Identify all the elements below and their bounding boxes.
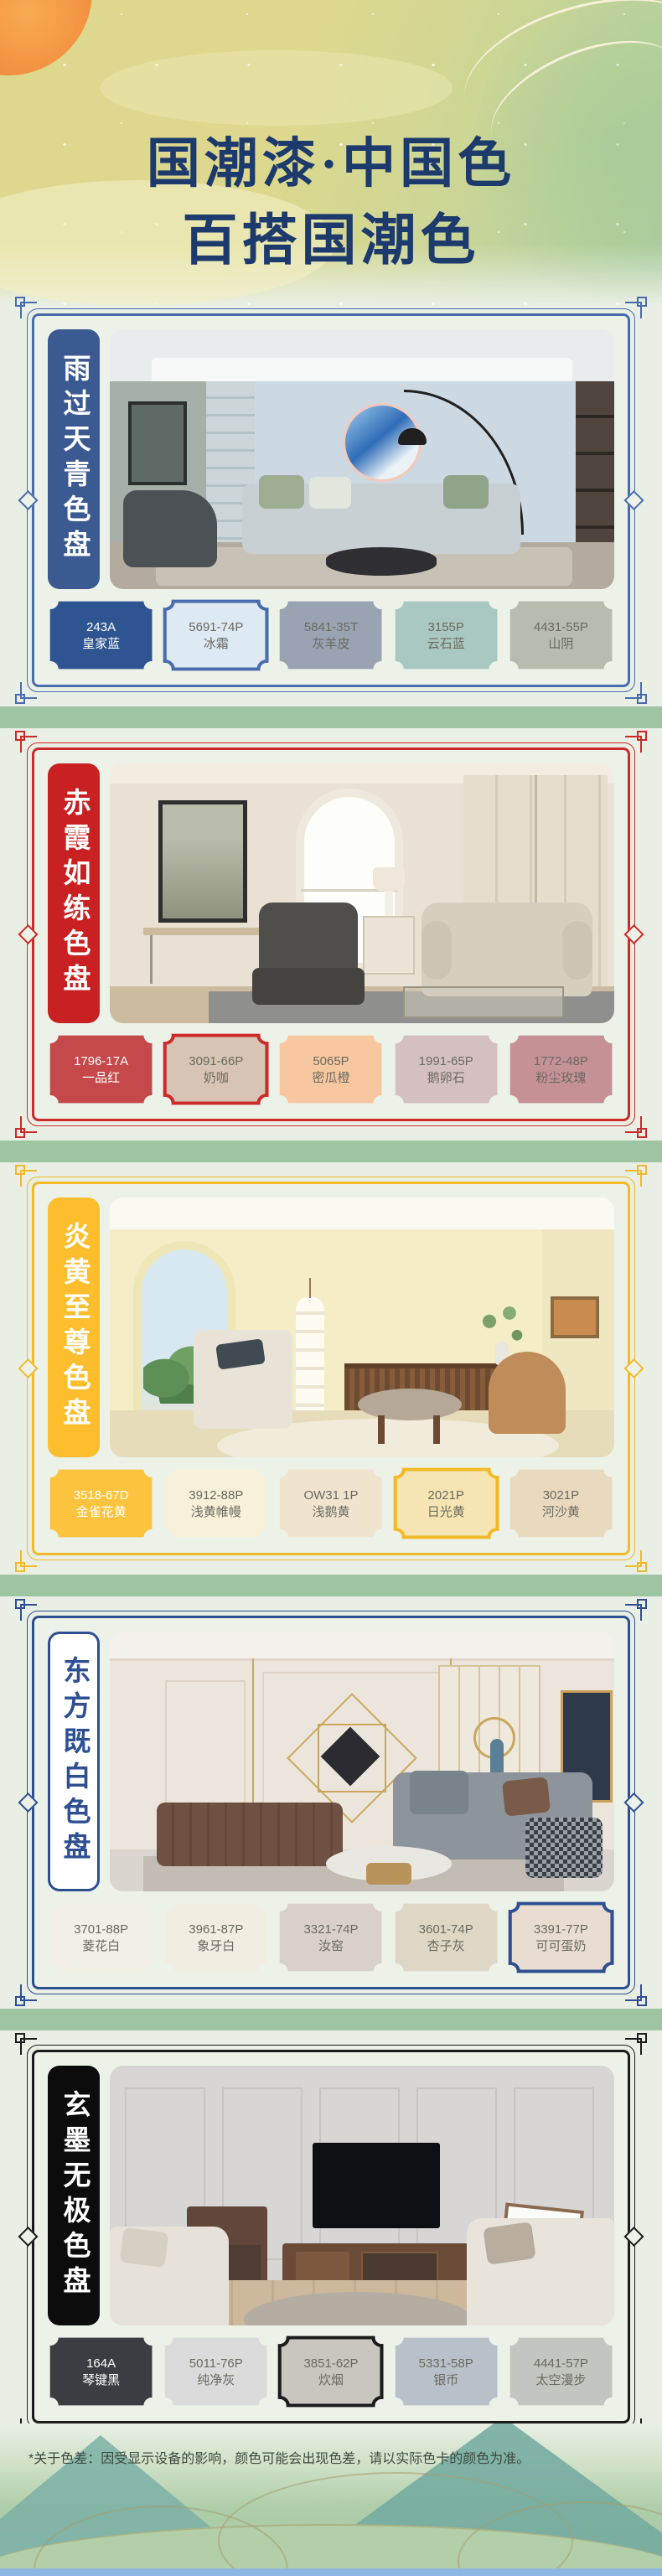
palette-title: 玄墨无极色盘 xyxy=(54,2090,94,2301)
swatch-code: 2021P xyxy=(428,1489,464,1502)
poster-footer: *关于色差：因受显示设备的影响，颜色可能会出现色差，请以实际色卡的颜色为准。 xyxy=(0,2423,662,2576)
swatch-name: 冰霜 xyxy=(204,638,229,650)
color-swatch: 5691-74P冰霜 xyxy=(163,599,269,671)
swatch-code: OW31 1P xyxy=(303,1489,358,1502)
swatch-name: 一品红 xyxy=(82,1072,120,1084)
swatch-name: 奶咖 xyxy=(204,1072,229,1084)
table-leg xyxy=(433,1415,440,1444)
swatch-name: 云石蓝 xyxy=(427,638,465,650)
swatch-name: 山阴 xyxy=(548,638,573,650)
swatch-row: 3701-88P菱花白 3961-87P象牙白 3321-74P汝窑 3601-… xyxy=(48,1901,614,1973)
swatch-code: 4441-57P xyxy=(534,2357,588,2370)
color-swatch: 3391-77P可可蛋奶 xyxy=(508,1901,614,1973)
swatch-name: 太空漫步 xyxy=(535,2374,586,2387)
bottom-blue-bar xyxy=(0,2568,662,2576)
swatch-name: 鹅卵石 xyxy=(427,1072,465,1084)
table-leg xyxy=(378,1415,385,1444)
swatch-name: 灰羊皮 xyxy=(313,638,350,650)
cushion-white xyxy=(309,477,351,509)
swatch-name: 纯净灰 xyxy=(197,2374,235,2387)
lamp-finial xyxy=(309,1278,311,1298)
frame-edge-ornament xyxy=(18,924,38,944)
section-divider xyxy=(0,1555,662,1616)
swatch-name: 汝窑 xyxy=(318,1940,344,1953)
houndstooth-pouf xyxy=(525,1818,603,1878)
swatch-code: 5065P xyxy=(313,1055,349,1068)
sofa-roll-arm xyxy=(562,921,592,980)
swatch-name: 银币 xyxy=(433,2374,458,2387)
color-disclaimer: *关于色差：因受显示设备的影响，颜色可能会出现色差，请以实际色卡的颜色为准。 xyxy=(28,2447,645,2467)
leather-bench xyxy=(157,1803,343,1866)
swatch-row: 3518-67D金雀花黄 3912-88P浅黄帷幔 OW31 1P浅鹅黄 202… xyxy=(48,1467,614,1539)
swatch-code: 3961-87P xyxy=(189,1923,243,1936)
color-swatch: 3155P云石蓝 xyxy=(393,599,499,671)
section-divider xyxy=(0,1989,662,2050)
swatch-code: 3701-88P xyxy=(74,1923,128,1936)
swatch-code: 3518-67D xyxy=(74,1489,129,1502)
palette-banner: 东方既白色盘 xyxy=(48,1632,100,1891)
coffee-table-glass xyxy=(403,986,564,1018)
swatch-code: 3391-77P xyxy=(534,1923,588,1936)
table-lamp-shade xyxy=(373,867,405,891)
left-sofa-pillow xyxy=(120,2227,169,2268)
color-swatch: 3518-67D金雀花黄 xyxy=(48,1467,154,1539)
pagoda-lamp xyxy=(296,1296,324,1424)
rattan-chair xyxy=(489,1352,566,1434)
swatch-code: 1991-65P xyxy=(419,1055,473,1068)
swatch-code: 164A xyxy=(86,2357,116,2370)
art-frame xyxy=(128,401,187,485)
palette-card-white: 东方既白色盘 xyxy=(32,1616,630,1989)
room-photo xyxy=(110,2066,614,2325)
cushion-green2 xyxy=(443,475,489,509)
table-base-gold xyxy=(366,1863,411,1885)
swatch-code: 5841-35T xyxy=(304,621,358,634)
green-band xyxy=(0,706,662,728)
green-band xyxy=(0,1575,662,1596)
palette-card-red: 赤霞如练色盘 1796-17A一品红 xyxy=(32,747,630,1121)
color-swatch: 5331-58P银币 xyxy=(393,2335,499,2408)
swatch-code: 3155P xyxy=(428,621,464,634)
palette-banner: 玄墨无极色盘 xyxy=(48,2066,100,2325)
color-swatch: OW31 1P浅鹅黄 xyxy=(277,1467,384,1539)
swatch-code: 5691-74P xyxy=(189,621,243,634)
frame-edge-ornament xyxy=(18,2227,38,2247)
ceiling-recess xyxy=(152,358,572,381)
lamp-body xyxy=(385,891,393,916)
swatch-name: 杏子灰 xyxy=(427,1940,465,1953)
swatch-name: 浅鹅黄 xyxy=(313,1506,350,1518)
color-swatch: 3961-87P象牙白 xyxy=(163,1901,269,1973)
room-photo xyxy=(110,763,614,1023)
hall-painting xyxy=(551,1296,599,1338)
swatch-name: 炊烟 xyxy=(318,2374,344,2387)
brown-pillow xyxy=(502,1777,551,1816)
color-swatch: 3851-62P炊烟 xyxy=(277,2335,384,2408)
swatch-code: 1772-48P xyxy=(534,1055,588,1068)
swatch-name: 粉尘玫瑰 xyxy=(535,1072,586,1084)
swatch-row: 164A琴键黑 5011-76P纯净灰 3851-62P炊烟 5331-58P银… xyxy=(48,2335,614,2408)
palette-card-list: 雨过天青色盘 243A皇家蓝 5691 xyxy=(0,305,662,2423)
lounge-chair xyxy=(123,490,217,567)
sofa-roll-arm xyxy=(422,921,452,980)
frame-edge-ornament xyxy=(18,1792,38,1813)
coffee-table xyxy=(326,547,437,576)
console-leg xyxy=(150,935,153,984)
room-photo xyxy=(110,1632,614,1891)
palette-card-rain-blue: 雨过天青色盘 243A皇家蓝 5691 xyxy=(32,313,630,687)
section-divider xyxy=(0,1121,662,1182)
bookshelf xyxy=(576,381,614,542)
swatch-code: 3601-74P xyxy=(419,1923,473,1936)
poster-header: 国潮漆·中国色 百搭国潮色 xyxy=(0,0,662,305)
swatch-code: 3851-62P xyxy=(303,2357,358,2370)
swatch-name: 日光黄 xyxy=(427,1506,465,1518)
frame-edge-ornament xyxy=(623,490,644,510)
coffee-table xyxy=(358,1389,462,1420)
ceiling xyxy=(110,1197,614,1229)
color-swatch: 5841-35T灰羊皮 xyxy=(277,599,384,671)
palette-card-black: 玄墨无极色盘 164A琴键黑 xyxy=(32,2050,630,2423)
sun-icon xyxy=(0,0,92,75)
poster-title-line1: 国潮漆·中国色 xyxy=(0,134,662,194)
swatch-code: 3912-88P xyxy=(189,1489,243,1502)
color-swatch: 164A琴键黑 xyxy=(48,2335,154,2408)
palette-card-yellow: 炎黄至尊色盘 3518-67 xyxy=(32,1182,630,1555)
color-swatch: 3091-66P奶咖 xyxy=(163,1033,269,1105)
color-swatch: 3601-74P杏子灰 xyxy=(393,1901,499,1973)
swatch-name: 密瓜橙 xyxy=(313,1072,350,1084)
poster-title-line2: 百搭国潮色 xyxy=(0,211,662,272)
swatch-name: 象牙白 xyxy=(197,1940,235,1953)
palette-banner: 赤霞如练色盘 xyxy=(48,763,100,1023)
swatch-row: 243A皇家蓝 5691-74P冰霜 5841-35T灰羊皮 3155P云石蓝 … xyxy=(48,599,614,671)
painting xyxy=(158,800,247,923)
swatch-name: 琴键黑 xyxy=(82,2374,120,2387)
swatch-name: 皇家蓝 xyxy=(82,638,120,650)
room-photo xyxy=(110,329,614,589)
swatch-code: 3091-66P xyxy=(189,1055,243,1068)
color-swatch: 4441-57P太空漫步 xyxy=(508,2335,614,2408)
swatch-name: 河沙黄 xyxy=(542,1506,580,1518)
swatch-code: 4431-55P xyxy=(534,621,588,634)
cushion-green xyxy=(259,475,304,509)
color-swatch: 1796-17A一品红 xyxy=(48,1033,154,1105)
color-swatch: 3321-74P汝窑 xyxy=(277,1901,384,1973)
swatch-code: 3021P xyxy=(543,1489,579,1502)
frame-edge-ornament xyxy=(623,924,644,944)
swatch-row: 1796-17A一品红 3091-66P奶咖 5065P密瓜橙 1991-65P… xyxy=(48,1033,614,1105)
swatch-code: 1796-17A xyxy=(74,1055,128,1068)
color-swatch: 4431-55P山阴 xyxy=(508,599,614,671)
green-band xyxy=(0,1141,662,1162)
room-photo xyxy=(110,1197,614,1457)
swatch-name: 可可蛋奶 xyxy=(535,1940,586,1953)
color-swatch: 243A皇家蓝 xyxy=(48,599,154,671)
frame-edge-ornament xyxy=(18,1358,38,1379)
swatch-name: 金雀花黄 xyxy=(76,1506,127,1518)
color-swatch: 5011-76P纯净灰 xyxy=(163,2335,269,2408)
swatch-name: 浅黄帷幔 xyxy=(191,1506,241,1518)
palette-title: 赤霞如练色盘 xyxy=(54,788,94,999)
green-band xyxy=(0,2009,662,2030)
swatch-code: 5011-76P xyxy=(189,2357,243,2370)
tv-screen xyxy=(313,2143,440,2228)
section-divider xyxy=(0,687,662,747)
side-table xyxy=(363,916,415,975)
color-swatch: 2021P日光黄 xyxy=(393,1467,499,1539)
palette-title: 东方既白色盘 xyxy=(54,1656,94,1867)
palette-banner: 雨过天青色盘 xyxy=(48,329,100,589)
sofa-cushion xyxy=(410,1771,468,1814)
color-swatch: 5065P密瓜橙 xyxy=(277,1033,384,1105)
ceiling xyxy=(110,1632,614,1661)
swatch-code: 3321-74P xyxy=(303,1923,358,1936)
color-swatch: 3021P河沙黄 xyxy=(508,1467,614,1539)
palette-banner: 炎黄至尊色盘 xyxy=(48,1197,100,1457)
color-swatch: 1991-65P鹅卵石 xyxy=(393,1033,499,1105)
frame-edge-ornament xyxy=(623,2227,644,2247)
palette-title: 雨过天青色盘 xyxy=(54,354,94,565)
color-swatch: 3912-88P浅黄帷幔 xyxy=(163,1467,269,1539)
frame-edge-ornament xyxy=(18,490,38,510)
swatch-name: 菱花白 xyxy=(82,1940,120,1953)
color-swatch: 3701-88P菱花白 xyxy=(48,1901,154,1973)
swatch-code: 243A xyxy=(86,621,116,634)
sofa-pillow xyxy=(483,2222,536,2265)
palette-title: 炎黄至尊色盘 xyxy=(54,1222,94,1433)
console-table xyxy=(143,928,269,935)
armchair-seat xyxy=(252,968,365,1005)
cloud-blob xyxy=(101,50,453,126)
frame-edge-ornament xyxy=(623,1792,644,1813)
swatch-code: 5331-58P xyxy=(419,2357,473,2370)
frame-edge-ornament xyxy=(623,1358,644,1379)
color-swatch: 1772-48P粉尘玫瑰 xyxy=(508,1033,614,1105)
